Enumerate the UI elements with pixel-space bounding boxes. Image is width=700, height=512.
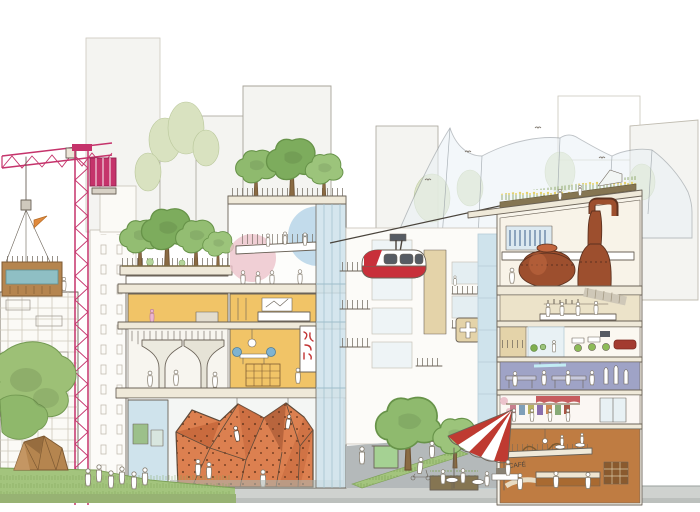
cafe-table — [446, 478, 458, 483]
table — [240, 354, 268, 358]
person-figure — [148, 371, 153, 386]
person-figure — [513, 372, 517, 386]
person-figure — [174, 370, 179, 385]
wall-art — [262, 298, 292, 311]
person-figure — [510, 268, 515, 283]
person-figure — [546, 303, 550, 316]
desk — [572, 338, 584, 343]
mushroom-column-hall — [128, 329, 228, 388]
roof-slab — [228, 196, 346, 204]
balcony — [340, 338, 370, 347]
person-figure — [566, 409, 570, 421]
green-chair — [602, 343, 609, 350]
transfer-slab — [116, 388, 348, 398]
desk — [588, 337, 600, 342]
person-figure — [560, 302, 564, 315]
person-figure — [150, 309, 154, 322]
bg-tree — [193, 130, 219, 166]
table — [555, 445, 565, 449]
floor-slab — [118, 284, 348, 293]
balcony — [340, 300, 370, 309]
street-kiosk — [374, 446, 398, 468]
playroom-floor — [128, 294, 228, 326]
tan-panel — [424, 250, 446, 334]
person-figure — [548, 409, 552, 421]
module-glazing — [6, 270, 58, 284]
workbench — [506, 376, 536, 380]
scene-svg: CAFÉ — [0, 0, 700, 512]
gondola-window — [415, 254, 423, 264]
gondola-window — [384, 254, 397, 264]
shelf-unit — [604, 462, 628, 484]
barista-figure — [506, 460, 511, 475]
person-figure — [530, 409, 534, 421]
roof-railing — [232, 188, 344, 196]
orange-flag — [34, 216, 47, 228]
still-neck — [588, 211, 602, 246]
plant — [531, 345, 538, 352]
gondola-window — [400, 254, 413, 264]
person-figure — [213, 372, 218, 387]
person-figure — [270, 271, 274, 285]
person-figure — [590, 371, 594, 385]
person-figure — [485, 472, 489, 486]
hoist-block — [21, 200, 31, 210]
person-figure — [207, 462, 212, 478]
person-figure — [552, 341, 556, 352]
person-figure — [96, 465, 101, 482]
lawn — [0, 468, 236, 503]
shop-light — [534, 365, 566, 366]
gondola-hull — [362, 266, 426, 278]
espresso-machine — [496, 468, 506, 474]
person-figure — [131, 472, 136, 489]
module-railing — [4, 256, 60, 262]
bed — [258, 312, 310, 321]
person-figure — [241, 271, 245, 285]
canopy-shadow — [33, 388, 59, 408]
person-figure — [359, 447, 364, 464]
chair — [267, 348, 276, 357]
workshop-floor — [497, 362, 642, 395]
crane-hoist — [6, 157, 50, 262]
floor-slab — [497, 357, 642, 362]
person-figure — [566, 371, 570, 385]
copper-highlight — [529, 253, 547, 275]
person-figure — [554, 471, 559, 487]
screen — [600, 331, 610, 337]
cafe-counter — [492, 474, 518, 480]
person-figure — [594, 301, 598, 314]
clinic-cross-sign — [456, 318, 480, 342]
person-figure — [85, 469, 90, 486]
person-figure — [303, 233, 307, 245]
pendant-lamp — [543, 439, 548, 444]
still-pot — [519, 253, 575, 287]
balcony — [452, 286, 478, 294]
person-figure — [119, 467, 124, 484]
person-figure — [430, 441, 435, 457]
living-floor — [230, 326, 316, 388]
table — [575, 443, 585, 447]
lawn-front-face — [0, 494, 236, 503]
cafe-table — [472, 480, 484, 485]
cable-bogie — [390, 234, 406, 241]
person-figure — [558, 189, 561, 199]
person-figure — [542, 371, 546, 385]
bg-tree — [135, 153, 161, 191]
person-figure — [441, 470, 445, 484]
shrub — [147, 259, 154, 266]
hanging-clothes — [510, 405, 570, 415]
still-cap — [537, 244, 557, 252]
person-figure — [461, 469, 465, 483]
bird-icon — [535, 127, 541, 128]
boutique-floor — [497, 395, 642, 429]
shrub — [179, 260, 185, 266]
person-figure — [560, 435, 563, 445]
glass-room — [528, 327, 564, 357]
person-figure — [576, 302, 580, 315]
banner-sign — [300, 326, 316, 372]
green-chair — [588, 343, 595, 350]
railing — [502, 340, 524, 348]
chair — [233, 348, 242, 357]
person-figure — [142, 468, 147, 485]
canopy-shadow — [10, 368, 42, 392]
furniture — [196, 312, 218, 322]
person-figure — [512, 409, 516, 421]
floor-slab — [497, 321, 642, 327]
person-figure — [196, 459, 201, 475]
office-floor — [497, 327, 642, 362]
red-sofa — [614, 340, 636, 349]
person-figure — [298, 270, 302, 284]
window — [372, 342, 412, 368]
person-figure — [283, 232, 287, 244]
poster — [133, 424, 148, 444]
person-figure — [62, 277, 66, 290]
floor-slab — [497, 390, 642, 395]
floor-slab — [497, 424, 642, 429]
poster — [151, 430, 163, 446]
floor-slab — [497, 286, 642, 295]
person-figure — [266, 234, 270, 246]
green-chair — [574, 344, 581, 351]
terrace-planter — [120, 266, 232, 275]
plant — [540, 344, 546, 350]
window — [372, 308, 412, 334]
bedroom-floor — [230, 294, 316, 322]
person-figure — [586, 472, 591, 488]
illustration-canvas: CAFÉ — [0, 0, 700, 512]
person-figure — [108, 471, 113, 488]
person-figure — [580, 433, 583, 443]
person-figure — [454, 276, 457, 285]
hoisted-timber-module — [2, 256, 62, 296]
pendant-lamp — [248, 339, 256, 347]
person-figure — [578, 185, 581, 195]
balcony — [416, 358, 442, 366]
